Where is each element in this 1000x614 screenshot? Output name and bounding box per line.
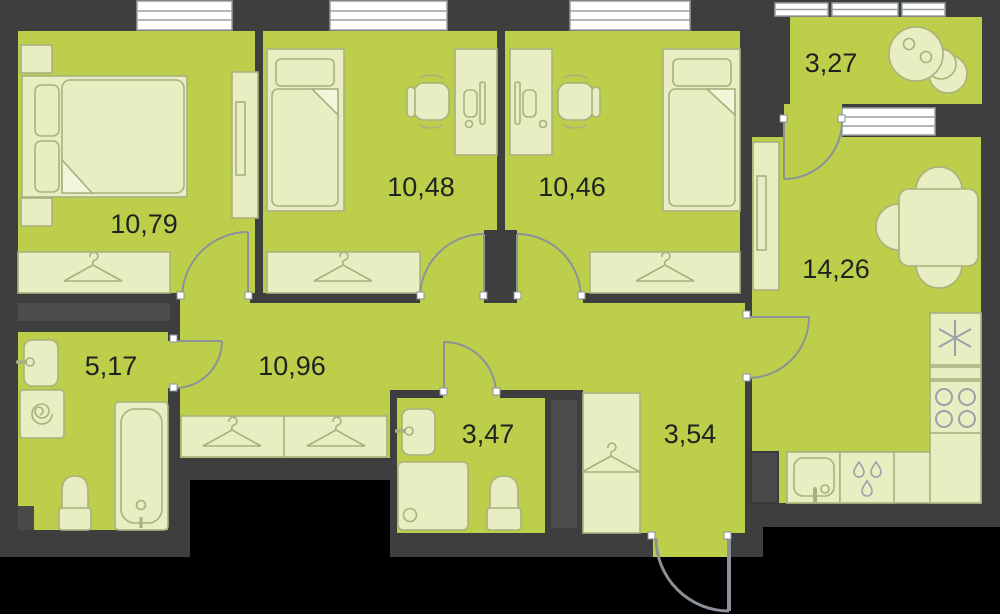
pillow-icon — [35, 141, 59, 192]
washing-machine-icon — [20, 390, 64, 438]
outside-notch — [190, 480, 390, 614]
window-bedroom-2 — [330, 1, 447, 30]
kitchen-drawer — [930, 367, 981, 379]
dishwasher-icon — [840, 452, 894, 503]
toilet-icon — [59, 476, 91, 530]
window-kitchen — [842, 108, 935, 135]
floor-plan-canvas: 10,79 10,48 10,46 3,27 14,26 10,96 5,17 … — [0, 0, 1000, 614]
mouse-icon — [466, 121, 473, 128]
nightstand-icon — [21, 45, 52, 73]
single-bed-icon — [663, 49, 740, 211]
pillow-icon — [673, 59, 731, 86]
tall-cabinet-icon — [232, 72, 258, 218]
duct-beside-toilet — [551, 400, 577, 528]
wardrobe-icon — [181, 416, 387, 457]
pillow-icon — [35, 85, 59, 136]
area-label-toilet: 3,47 — [462, 419, 515, 449]
pillow-icon — [276, 59, 334, 86]
wardrobe-icon — [582, 393, 640, 533]
area-label-hallway: 10,96 — [258, 351, 326, 381]
monitor-icon — [480, 82, 485, 124]
single-bed-icon — [267, 49, 344, 211]
floor-plan: 10,79 10,48 10,46 3,27 14,26 10,96 5,17 … — [0, 0, 1000, 614]
mouse-icon — [540, 121, 547, 128]
monitor-icon — [515, 82, 520, 124]
sink-icon — [397, 409, 435, 455]
wardrobe-icon — [18, 252, 170, 293]
sink-icon — [18, 340, 58, 386]
balcony-table-icon — [889, 27, 943, 81]
kitchen-sink-icon — [787, 452, 840, 503]
stove-icon — [930, 381, 981, 433]
area-label-entry-hall: 3,54 — [664, 419, 717, 449]
dining-table-icon — [899, 189, 978, 266]
doorway-toilet — [443, 390, 500, 398]
area-label-kitchen: 14,26 — [802, 254, 870, 284]
doorway-kitchen — [744, 317, 753, 379]
bathtub-icon — [115, 402, 168, 530]
balcony-glazing — [775, 3, 945, 16]
doorway-entrance — [653, 533, 729, 557]
shower-icon — [398, 462, 468, 530]
duct-above-bathroom — [18, 303, 170, 321]
area-label-bathroom: 5,17 — [85, 351, 138, 381]
desk-icon — [510, 49, 552, 155]
doorway-balcony — [784, 104, 842, 137]
tall-cabinet-icon — [753, 142, 779, 290]
wardrobe-icon — [590, 252, 740, 293]
duct-kitchen — [751, 452, 778, 503]
area-label-bedroom-1: 10,79 — [110, 209, 178, 239]
area-label-balcony: 3,27 — [805, 48, 858, 78]
wall-stub-between-bedroom-doors — [484, 230, 517, 303]
toilet-icon — [487, 476, 521, 530]
fridge-icon — [930, 313, 981, 365]
desk-icon — [455, 49, 497, 155]
window-bedroom-1 — [137, 1, 232, 30]
doorway-bedroom-1 — [180, 293, 250, 303]
wardrobe-icon — [267, 252, 420, 293]
area-label-bedroom-2: 10,48 — [387, 172, 455, 202]
doorway-bedroom-3 — [517, 293, 583, 303]
area-label-bedroom-3: 10,46 — [538, 172, 606, 202]
window-bedroom-3 — [570, 1, 690, 30]
duct-bathroom-corner — [18, 506, 34, 530]
doorway-bathroom — [168, 341, 180, 388]
nightstand-icon — [21, 198, 52, 226]
doorway-bedroom-2 — [420, 293, 484, 303]
